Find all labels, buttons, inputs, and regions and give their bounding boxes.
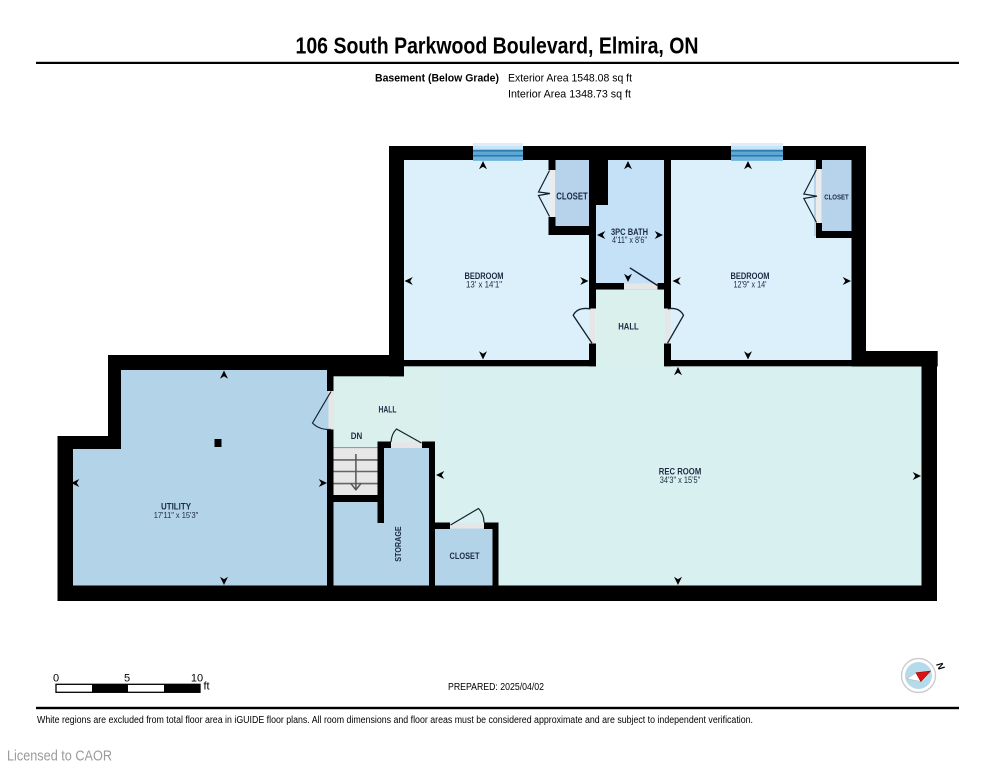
svg-text:Interior Area 1348.73 sq ft: Interior Area 1348.73 sq ft [508, 89, 631, 101]
svg-text:Basement (Below Grade): Basement (Below Grade) [375, 73, 499, 85]
svg-text:Licensed to CAOR: Licensed to CAOR [7, 749, 112, 765]
svg-text:CLOSET: CLOSET [824, 193, 849, 202]
svg-text:5: 5 [124, 673, 130, 685]
svg-text:CLOSET: CLOSET [450, 551, 480, 561]
svg-text:STORAGE: STORAGE [393, 526, 403, 562]
svg-text:HALL: HALL [618, 322, 639, 332]
svg-text:106 South Parkwood Boulevard,: 106 South Parkwood Boulevard, Elmira, ON [296, 33, 699, 59]
svg-text:DN: DN [351, 431, 363, 441]
svg-text:12'9" x 14': 12'9" x 14' [734, 279, 767, 289]
svg-text:White regions are excluded fro: White regions are excluded from total fl… [37, 715, 753, 726]
svg-text:4'11" x 8'6": 4'11" x 8'6" [612, 235, 647, 245]
svg-text:34'3" x 15'5": 34'3" x 15'5" [660, 475, 701, 485]
svg-text:CLOSET: CLOSET [556, 192, 588, 203]
svg-text:10: 10 [191, 673, 203, 685]
svg-text:17'11" x 15'3": 17'11" x 15'3" [154, 510, 199, 520]
svg-text:Exterior Area 1548.08 sq ft: Exterior Area 1548.08 sq ft [508, 73, 632, 85]
svg-text:ft: ft [204, 681, 210, 693]
svg-text:PREPARED: 2025/04/02: PREPARED: 2025/04/02 [448, 682, 544, 693]
svg-text:0: 0 [53, 673, 59, 685]
svg-text:HALL: HALL [379, 405, 397, 415]
svg-text:13' x 14'1": 13' x 14'1" [466, 279, 502, 289]
